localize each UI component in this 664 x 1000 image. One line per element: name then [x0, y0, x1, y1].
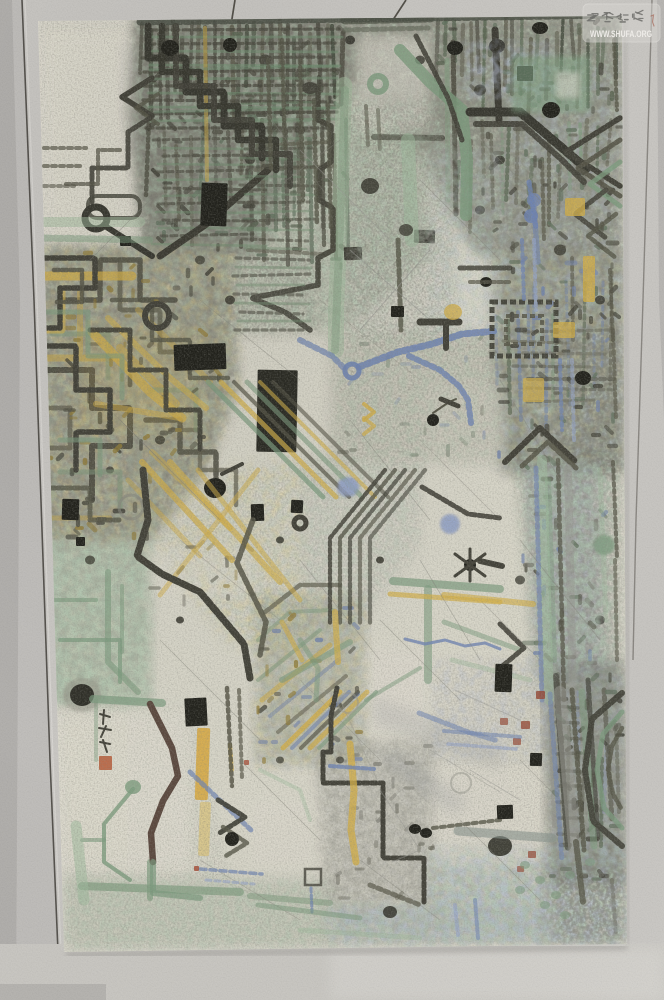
svg-text:WWW.SHUFA.ORG: WWW.SHUFA.ORG [590, 29, 652, 39]
